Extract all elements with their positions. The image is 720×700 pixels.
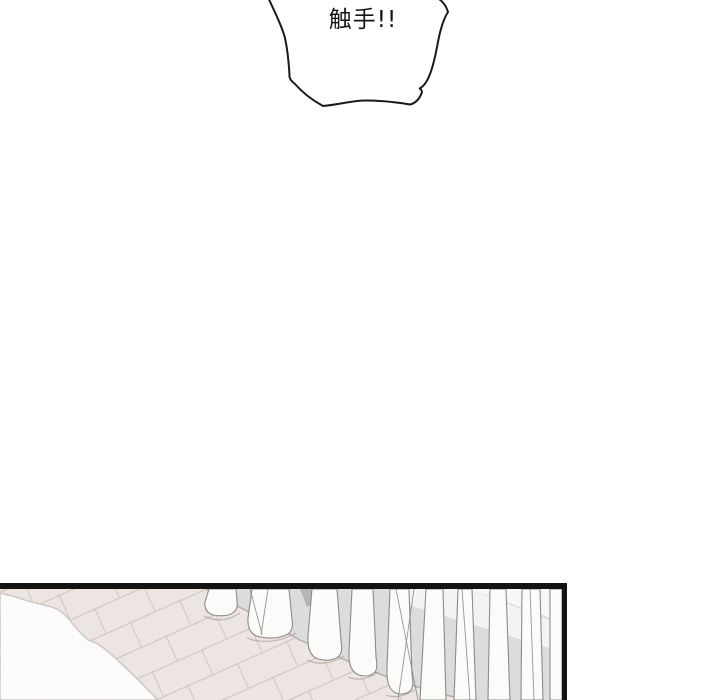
curtain-fold: [387, 589, 413, 694]
speech-bubble-text: 触手!!: [303, 6, 423, 35]
speech-bubble: 触手!!: [255, 0, 460, 118]
panel-scene-svg: [0, 589, 562, 700]
curtain-fold: [454, 589, 476, 700]
curtain-fold: [488, 589, 510, 700]
curtain-fold: [349, 589, 377, 676]
comic-panel: [0, 583, 567, 700]
curtain-fold: [308, 589, 342, 660]
curtain-fold: [205, 589, 237, 616]
comic-page: 触手!!: [0, 0, 720, 700]
curtain-fold: [550, 589, 562, 700]
curtain-fold: [248, 589, 293, 638]
